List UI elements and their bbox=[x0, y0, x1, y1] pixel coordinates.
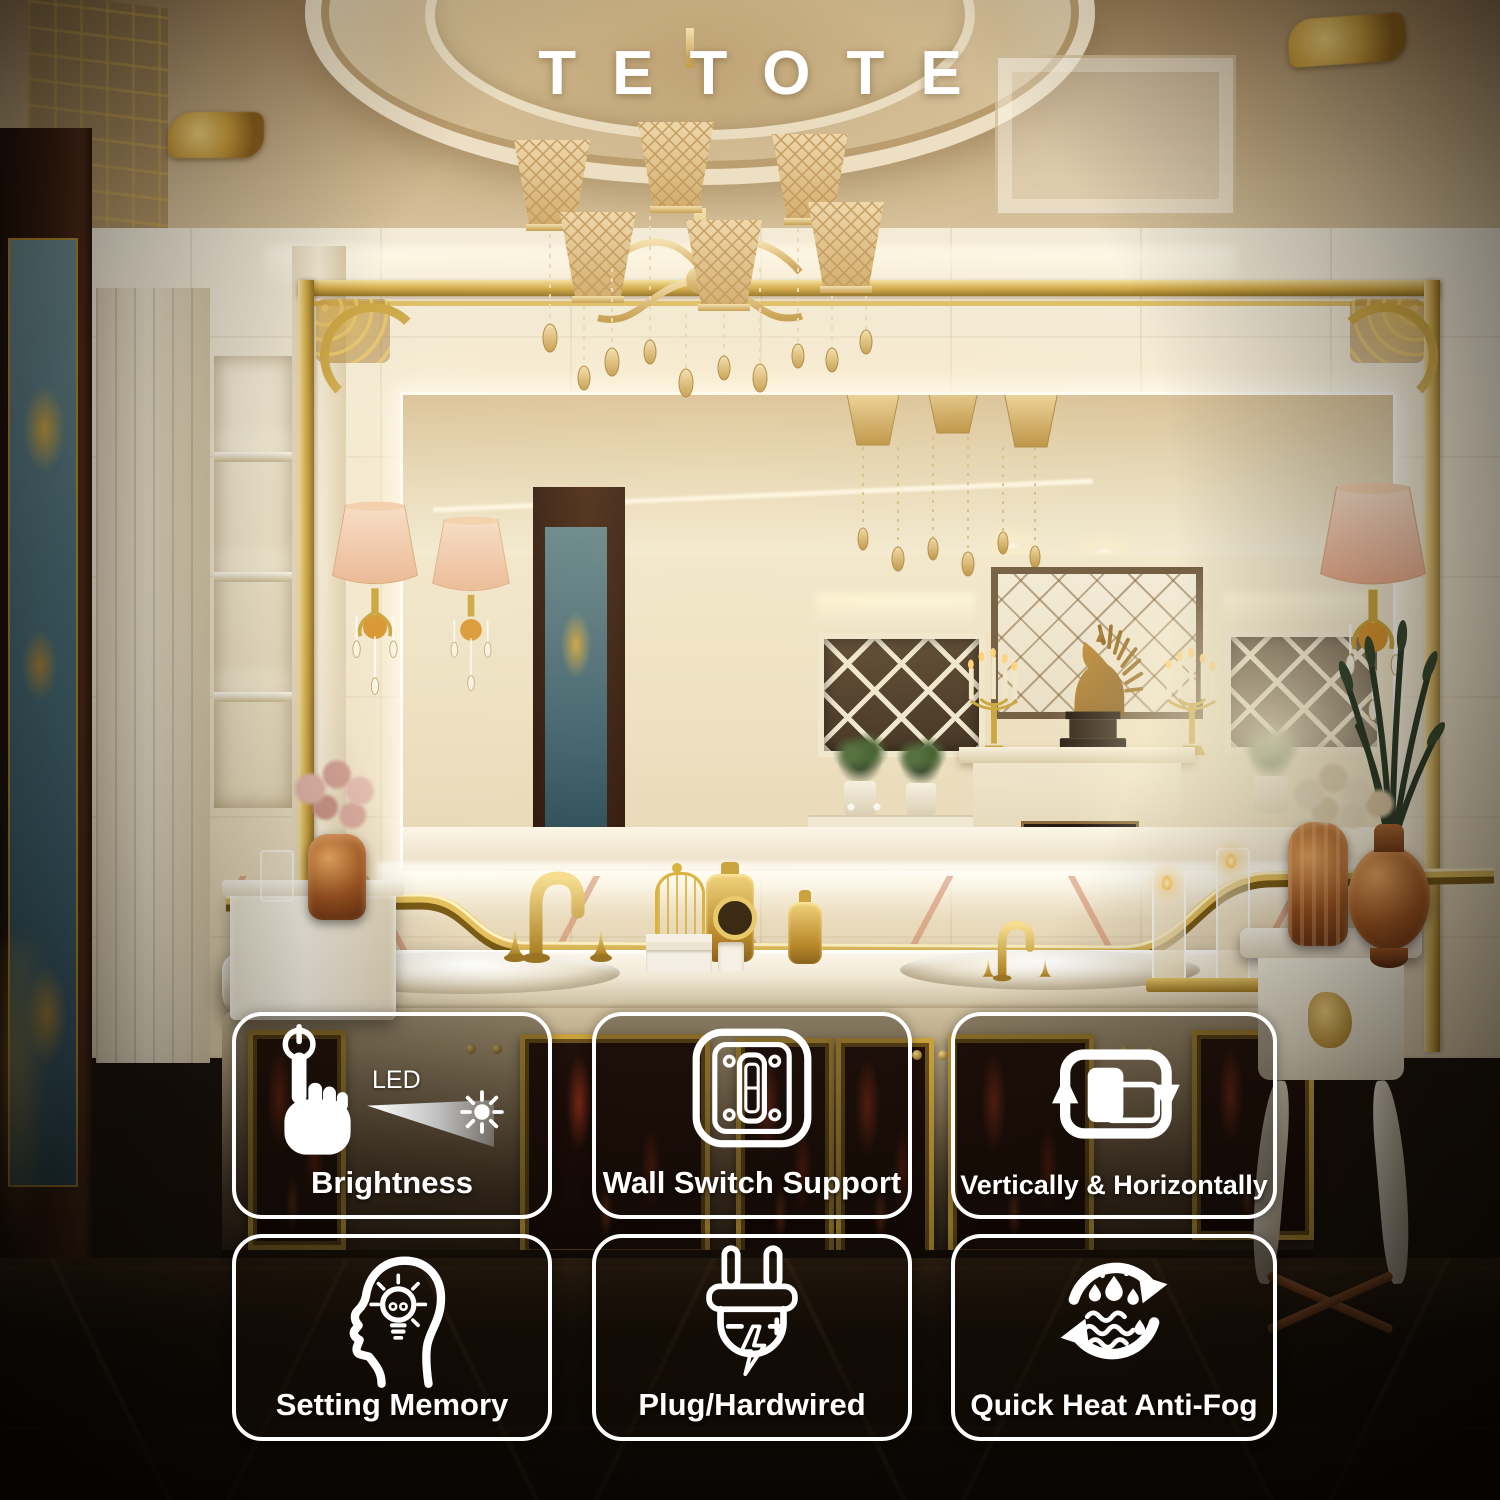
lit-shelf bbox=[214, 692, 292, 702]
gold-reflection-glow bbox=[0, 940, 48, 1255]
pink-flower-bouquet bbox=[282, 748, 396, 850]
feature-anti-fog: Quick Heat Anti-Fog bbox=[951, 1234, 1277, 1441]
anti-fog-icon bbox=[1051, 1248, 1177, 1374]
side-table-body bbox=[1258, 958, 1404, 1080]
touch-dimmer-icon bbox=[266, 1024, 358, 1162]
wall-niche bbox=[214, 356, 292, 808]
feature-rotation: Vertically & Horizontally bbox=[951, 1012, 1277, 1219]
sun-icon bbox=[460, 1090, 504, 1134]
feature-wall-switch: Wall Switch Support bbox=[592, 1012, 912, 1219]
candle-holder-base bbox=[1146, 978, 1266, 992]
glass-tumbler bbox=[260, 850, 294, 902]
gold-faucet bbox=[500, 834, 620, 964]
reflection-highlight bbox=[403, 395, 1393, 871]
memory-head-icon bbox=[329, 1244, 455, 1390]
book-stack bbox=[646, 950, 712, 972]
brand-logo: TETOTE bbox=[0, 38, 1500, 109]
gold-ornament bbox=[168, 112, 264, 158]
led-label: LED bbox=[372, 1066, 421, 1095]
feature-label: Quick Heat Anti-Fog bbox=[955, 1389, 1273, 1423]
hurricane-candle bbox=[1216, 848, 1250, 982]
gold-faucet bbox=[968, 896, 1068, 982]
candle-flame bbox=[1226, 854, 1236, 868]
candle-flame bbox=[1162, 876, 1172, 890]
product-image: TETOTE LED bbox=[0, 0, 1500, 1500]
lit-shelf bbox=[214, 572, 292, 582]
feature-label: Setting Memory bbox=[236, 1387, 548, 1423]
marble-pilaster bbox=[96, 288, 210, 1063]
rotate-mirror-icon bbox=[1046, 1032, 1182, 1156]
swab-cup bbox=[718, 942, 744, 972]
wall-sconce bbox=[316, 498, 434, 710]
feature-setting-memory: Setting Memory bbox=[232, 1234, 552, 1441]
feature-label: Plug/Hardwired bbox=[596, 1387, 908, 1423]
wall-switch-icon bbox=[690, 1026, 814, 1150]
gold-perfume-bottle bbox=[788, 902, 822, 964]
led-mirror bbox=[400, 392, 1396, 874]
feature-label: Wall Switch Support bbox=[596, 1165, 908, 1201]
feature-label: Vertically & Horizontally bbox=[955, 1170, 1273, 1201]
cream-flower-bouquet bbox=[1282, 752, 1404, 846]
lit-shelf bbox=[214, 452, 292, 462]
cabinet-knob bbox=[912, 1050, 922, 1060]
feature-power: Plug/Hardwired bbox=[592, 1234, 912, 1441]
power-plug-icon bbox=[690, 1242, 814, 1386]
side-table-cross-brace bbox=[1266, 1270, 1394, 1334]
copper-sphere-vase bbox=[1348, 846, 1430, 950]
feature-label: Brightness bbox=[236, 1165, 548, 1201]
cabinet-knob bbox=[938, 1050, 948, 1060]
feature-brightness: LED Brightness bbox=[232, 1012, 552, 1219]
